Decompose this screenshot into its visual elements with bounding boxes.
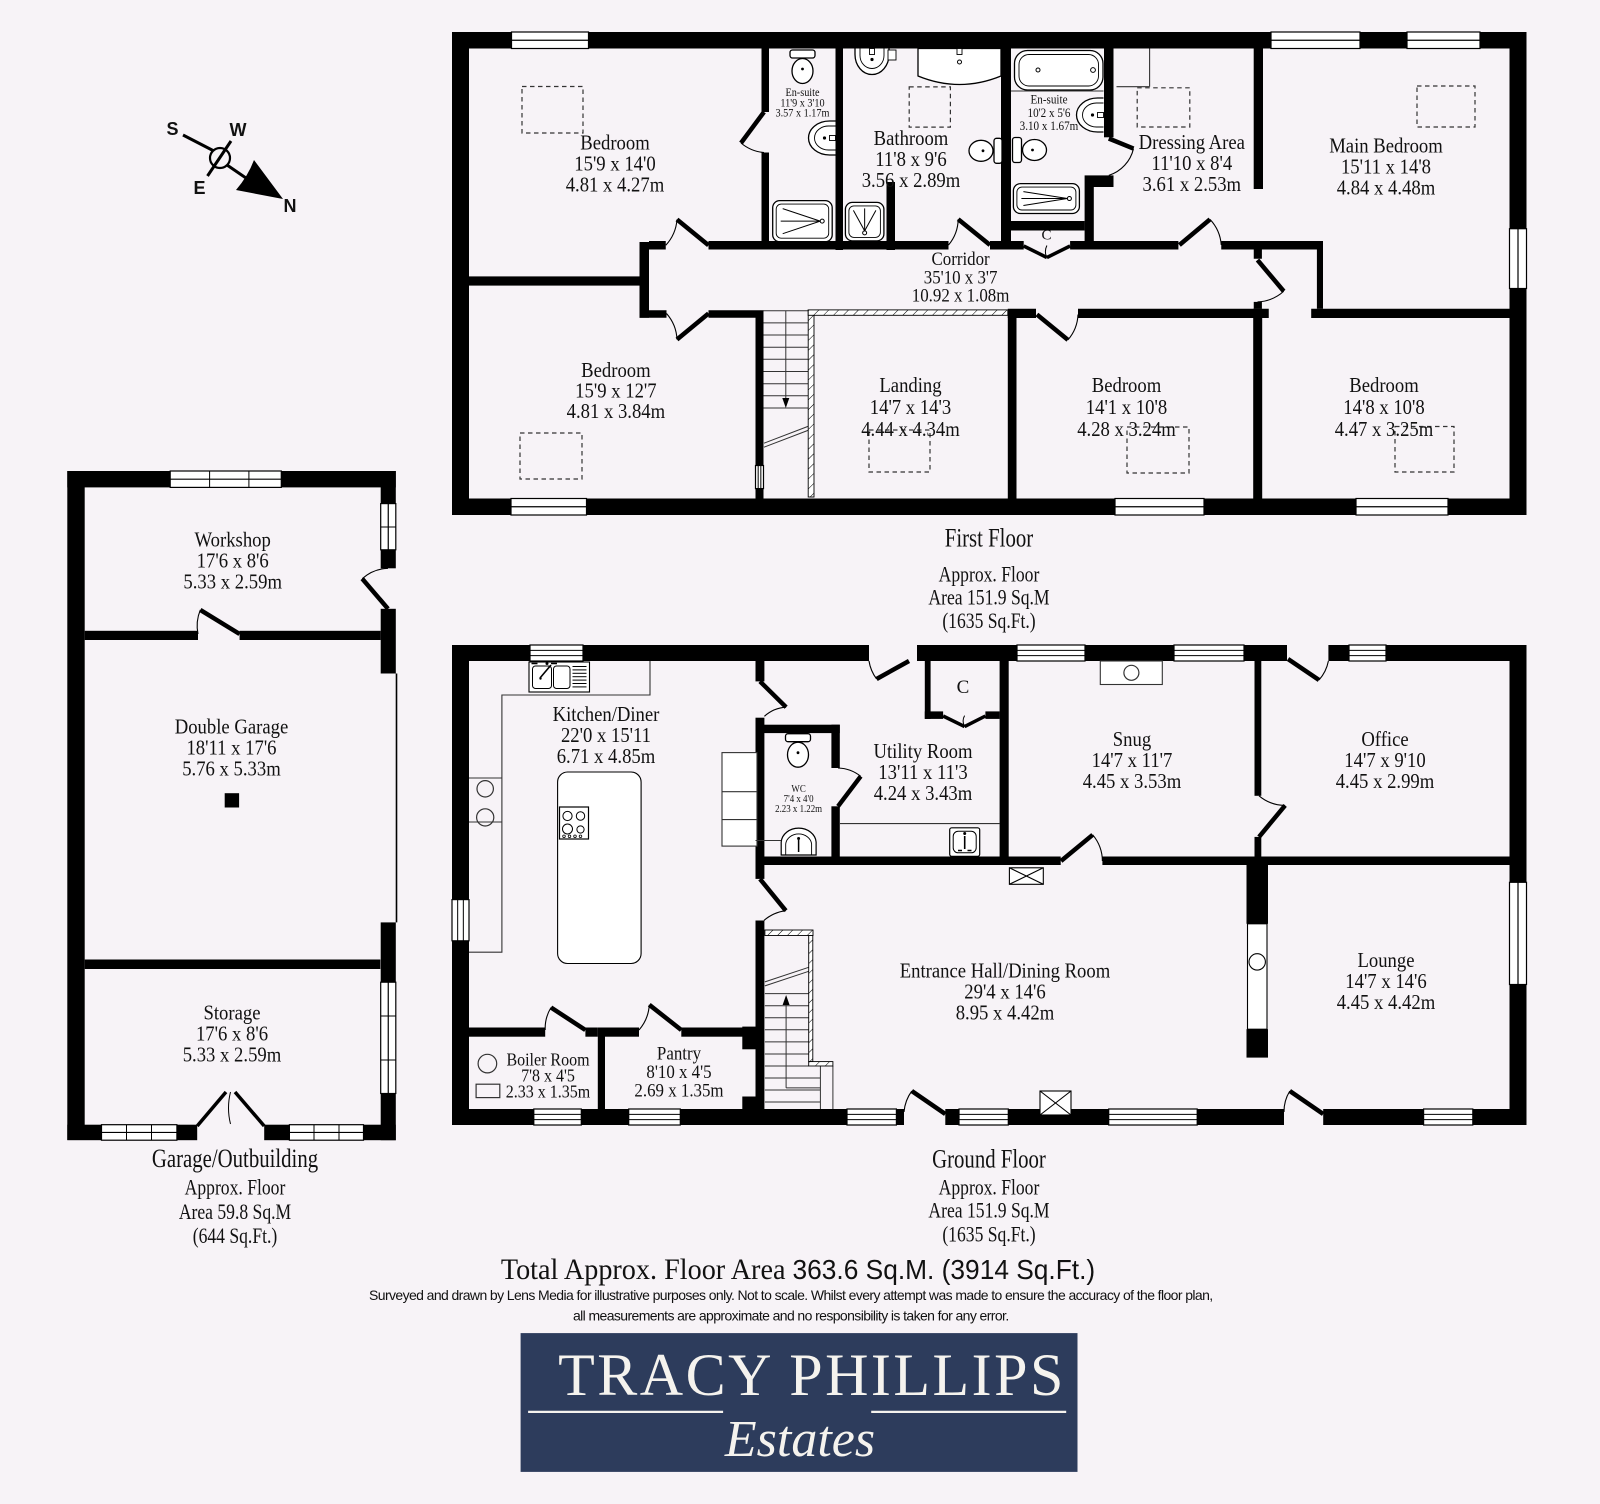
svg-text:Area 151.9 Sq.M: Area 151.9 Sq.M (928, 586, 1049, 610)
svg-text:5.33 x 2.59m: 5.33 x 2.59m (183, 1044, 282, 1067)
svg-text:4.45 x 3.53m: 4.45 x 3.53m (1083, 770, 1182, 793)
svg-text:First Floor: First Floor (945, 524, 1034, 553)
svg-text:4.28 x 3.24m: 4.28 x 3.24m (1077, 418, 1176, 441)
svg-text:Workshop: Workshop (195, 528, 271, 551)
svg-text:Entrance Hall/Dining Room: Entrance Hall/Dining Room (900, 960, 1111, 983)
svg-text:C: C (957, 677, 970, 698)
svg-text:13'11 x 11'3: 13'11 x 11'3 (878, 761, 967, 784)
svg-text:Double Garage: Double Garage (175, 716, 289, 739)
svg-text:5.33 x 2.59m: 5.33 x 2.59m (183, 570, 282, 593)
svg-text:Bedroom: Bedroom (1349, 374, 1419, 397)
svg-text:3.61 x 2.53m: 3.61 x 2.53m (1143, 173, 1242, 196)
svg-text:4.24 x 3.43m: 4.24 x 3.43m (874, 782, 973, 805)
svg-text:4.81 x 3.84m: 4.81 x 3.84m (567, 400, 666, 423)
svg-text:15'9 x 14'0: 15'9 x 14'0 (574, 153, 655, 176)
svg-text:(644 Sq.Ft.): (644 Sq.Ft.) (193, 1224, 278, 1248)
svg-text:4.44 x 4.34m: 4.44 x 4.34m (861, 418, 960, 441)
svg-text:Bedroom: Bedroom (580, 132, 650, 155)
svg-text:14'8 x 10'8: 14'8 x 10'8 (1343, 396, 1424, 419)
svg-text:3.10 x 1.67m: 3.10 x 1.67m (1020, 118, 1079, 133)
svg-text:17'6 x 8'6: 17'6 x 8'6 (196, 1023, 268, 1046)
svg-text:8.95 x 4.42m: 8.95 x 4.42m (956, 1002, 1055, 1025)
svg-text:14'7 x 14'3: 14'7 x 14'3 (870, 396, 951, 419)
svg-text:Dressing Area: Dressing Area (1139, 131, 1245, 154)
svg-text:S: S (166, 119, 178, 139)
svg-text:Bathroom: Bathroom (874, 127, 949, 150)
svg-text:Approx. Floor: Approx. Floor (939, 1176, 1040, 1200)
svg-text:Area 59.8 Sq.M: Area 59.8 Sq.M (179, 1200, 292, 1224)
svg-text:15'11 x 14'8: 15'11 x 14'8 (1341, 156, 1431, 179)
svg-text:Bedroom: Bedroom (1092, 374, 1162, 397)
svg-text:all measurements are approxima: all measurements are approximate and no … (573, 1307, 1009, 1323)
svg-text:Main Bedroom: Main Bedroom (1329, 135, 1443, 158)
svg-text:14'7 x 9'10: 14'7 x 9'10 (1344, 749, 1425, 772)
svg-text:14'7 x 11'7: 14'7 x 11'7 (1092, 749, 1173, 772)
svg-text:Approx. Floor: Approx. Floor (185, 1176, 286, 1200)
svg-text:(1635 Sq.Ft.): (1635 Sq.Ft.) (942, 609, 1035, 633)
svg-text:Garage/Outbuilding: Garage/Outbuilding (152, 1145, 318, 1174)
svg-text:10.92 x 1.08m: 10.92 x 1.08m (912, 285, 1010, 306)
svg-text:Ground Floor: Ground Floor (932, 1145, 1046, 1174)
svg-text:7'4 x 4'0: 7'4 x 4'0 (784, 795, 814, 806)
svg-text:Surveyed and drawn by Lens Med: Surveyed and drawn by Lens Media for ill… (369, 1287, 1213, 1303)
svg-text:22'0 x 15'11: 22'0 x 15'11 (561, 724, 651, 747)
svg-text:2.69 x 1.35m: 2.69 x 1.35m (634, 1079, 723, 1100)
svg-text:Area 151.9 Sq.M: Area 151.9 Sq.M (928, 1199, 1049, 1223)
svg-text:3.57 x 1.17m: 3.57 x 1.17m (776, 107, 830, 120)
svg-text:Utility Room: Utility Room (873, 740, 973, 763)
svg-text:4.81 x 4.27m: 4.81 x 4.27m (566, 174, 665, 197)
svg-text:Landing: Landing (879, 374, 941, 397)
svg-text:4.84 x 4.48m: 4.84 x 4.48m (1337, 177, 1436, 200)
svg-text:6.71 x 4.85m: 6.71 x 4.85m (557, 745, 656, 768)
svg-text:Office: Office (1361, 728, 1409, 751)
svg-text:Lounge: Lounge (1357, 949, 1414, 972)
svg-text:14'7 x 14'6: 14'7 x 14'6 (1345, 970, 1426, 993)
svg-text:Approx. Floor: Approx. Floor (939, 563, 1040, 587)
svg-text:Storage: Storage (203, 1002, 260, 1025)
svg-text:14'1 x 10'8: 14'1 x 10'8 (1086, 396, 1167, 419)
svg-text:C: C (1041, 228, 1051, 244)
svg-text:4.47 x 3.25m: 4.47 x 3.25m (1335, 418, 1434, 441)
svg-text:WC: WC (791, 785, 805, 796)
svg-text:Kitchen/Diner: Kitchen/Diner (553, 703, 660, 726)
svg-text:W: W (230, 120, 247, 140)
svg-text:(1635 Sq.Ft.): (1635 Sq.Ft.) (942, 1223, 1035, 1247)
svg-text:3.56 x 2.89m: 3.56 x 2.89m (862, 169, 961, 192)
svg-text:18'11 x 17'6: 18'11 x 17'6 (186, 737, 276, 760)
svg-text:5.76 x 5.33m: 5.76 x 5.33m (182, 758, 281, 781)
svg-text:4.45 x 2.99m: 4.45 x 2.99m (1336, 770, 1435, 793)
svg-text:29'4 x 14'6: 29'4 x 14'6 (964, 981, 1045, 1004)
svg-text:N: N (284, 196, 297, 216)
svg-text:Total Approx. Floor Area 363.6: Total Approx. Floor Area 363.6 Sq.M. (39… (501, 1253, 1095, 1286)
svg-text:2.33 x 1.35m: 2.33 x 1.35m (506, 1082, 590, 1102)
svg-text:E: E (193, 178, 205, 198)
svg-text:11'10 x 8'4: 11'10 x 8'4 (1151, 152, 1232, 175)
svg-text:Estates: Estates (724, 1411, 875, 1468)
svg-text:11'8 x 9'6: 11'8 x 9'6 (875, 148, 946, 171)
svg-text:17'6 x 8'6: 17'6 x 8'6 (197, 549, 269, 572)
svg-text:Snug: Snug (1113, 728, 1151, 751)
svg-text:4.45 x 4.42m: 4.45 x 4.42m (1337, 991, 1436, 1014)
svg-text:2.23 x 1.22m: 2.23 x 1.22m (775, 805, 823, 816)
svg-text:TRACY PHILLIPS: TRACY PHILLIPS (558, 1342, 1066, 1408)
